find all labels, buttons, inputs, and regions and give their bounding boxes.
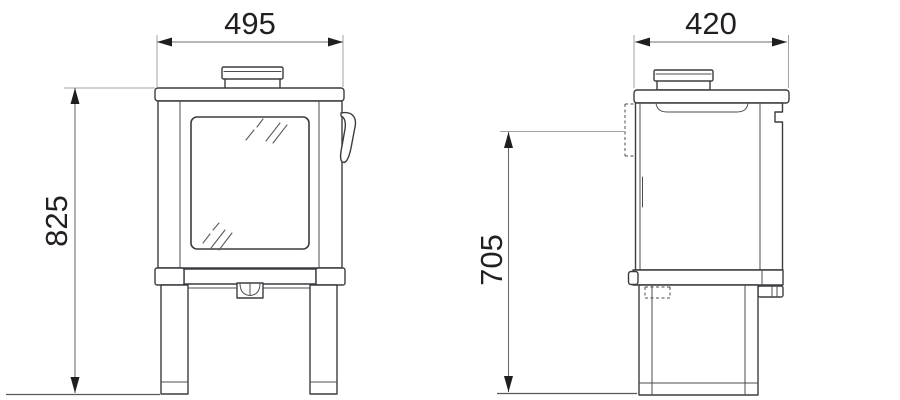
rear-latch-body <box>758 286 783 297</box>
bottom-rail <box>184 269 316 284</box>
front-width-label: 495 <box>224 6 276 41</box>
arrowhead-left <box>635 38 650 47</box>
side-depth-label: 420 <box>685 6 737 41</box>
side-bottom-rail <box>633 270 783 285</box>
drawing-canvas: 495 825 420 705 <box>0 0 900 400</box>
door-handle <box>341 113 356 163</box>
arrowhead-top <box>504 132 513 148</box>
flue-collar-lip <box>222 67 283 79</box>
front-height-label: 825 <box>39 195 74 247</box>
arrowhead-bottom <box>504 376 513 392</box>
side-top-plate <box>634 90 789 103</box>
arrowhead-right <box>772 38 787 47</box>
leg-top-block-left <box>155 268 184 285</box>
dimension-height-side: 705 <box>474 132 637 394</box>
arrowhead-right <box>328 38 343 47</box>
ash-latch <box>237 283 263 298</box>
hidden-handle-outline <box>625 104 634 156</box>
leg-top-block-right <box>316 268 345 285</box>
dimension-height-front: 825 <box>6 88 160 395</box>
side-pedestal <box>639 285 758 395</box>
arrowhead-bottom <box>71 377 80 393</box>
door-glass <box>191 117 309 249</box>
arrowhead-left <box>157 38 172 47</box>
rear-latch <box>758 286 783 297</box>
front-leg-right <box>310 285 337 394</box>
side-flue-collar-lip <box>654 70 713 81</box>
side-rail-front-tab <box>629 272 639 285</box>
arrowhead-top <box>71 88 80 104</box>
stove-dimension-drawing: 495 825 420 705 <box>0 0 900 400</box>
side-view <box>625 70 789 395</box>
top-plate <box>155 88 344 101</box>
side-height-label: 705 <box>474 234 509 286</box>
front-view <box>155 67 355 394</box>
front-leg-left <box>161 285 188 394</box>
